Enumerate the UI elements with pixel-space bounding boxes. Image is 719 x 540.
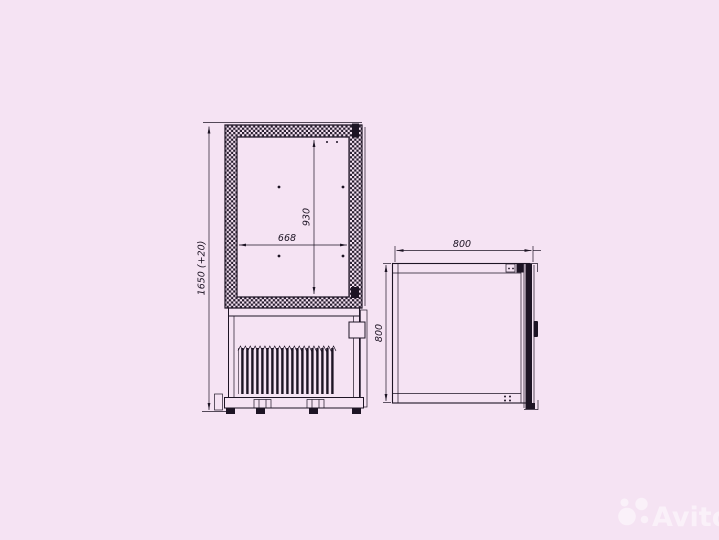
dim-depth-label: 800: [453, 239, 471, 250]
dim-overall-height-label: 1650 (+20): [197, 241, 208, 296]
dim-side-height-label: 800: [374, 324, 385, 342]
switch-box: [349, 322, 365, 338]
hinge-block: [517, 264, 524, 273]
screenshot-root: 930 668 1650 (+20): [0, 0, 719, 540]
door-foot: [526, 403, 535, 409]
dim-inner-width-label: 668: [278, 233, 296, 244]
side-view: 800 800: [374, 239, 541, 410]
door-handle: [534, 321, 539, 337]
watermark-brand-text: Avito: [652, 502, 719, 533]
technical-drawing: 930 668 1650 (+20): [0, 0, 719, 540]
dim-inner-height-label: 930: [302, 208, 313, 226]
side-body: [393, 264, 530, 404]
condenser-fins: [238, 346, 336, 394]
